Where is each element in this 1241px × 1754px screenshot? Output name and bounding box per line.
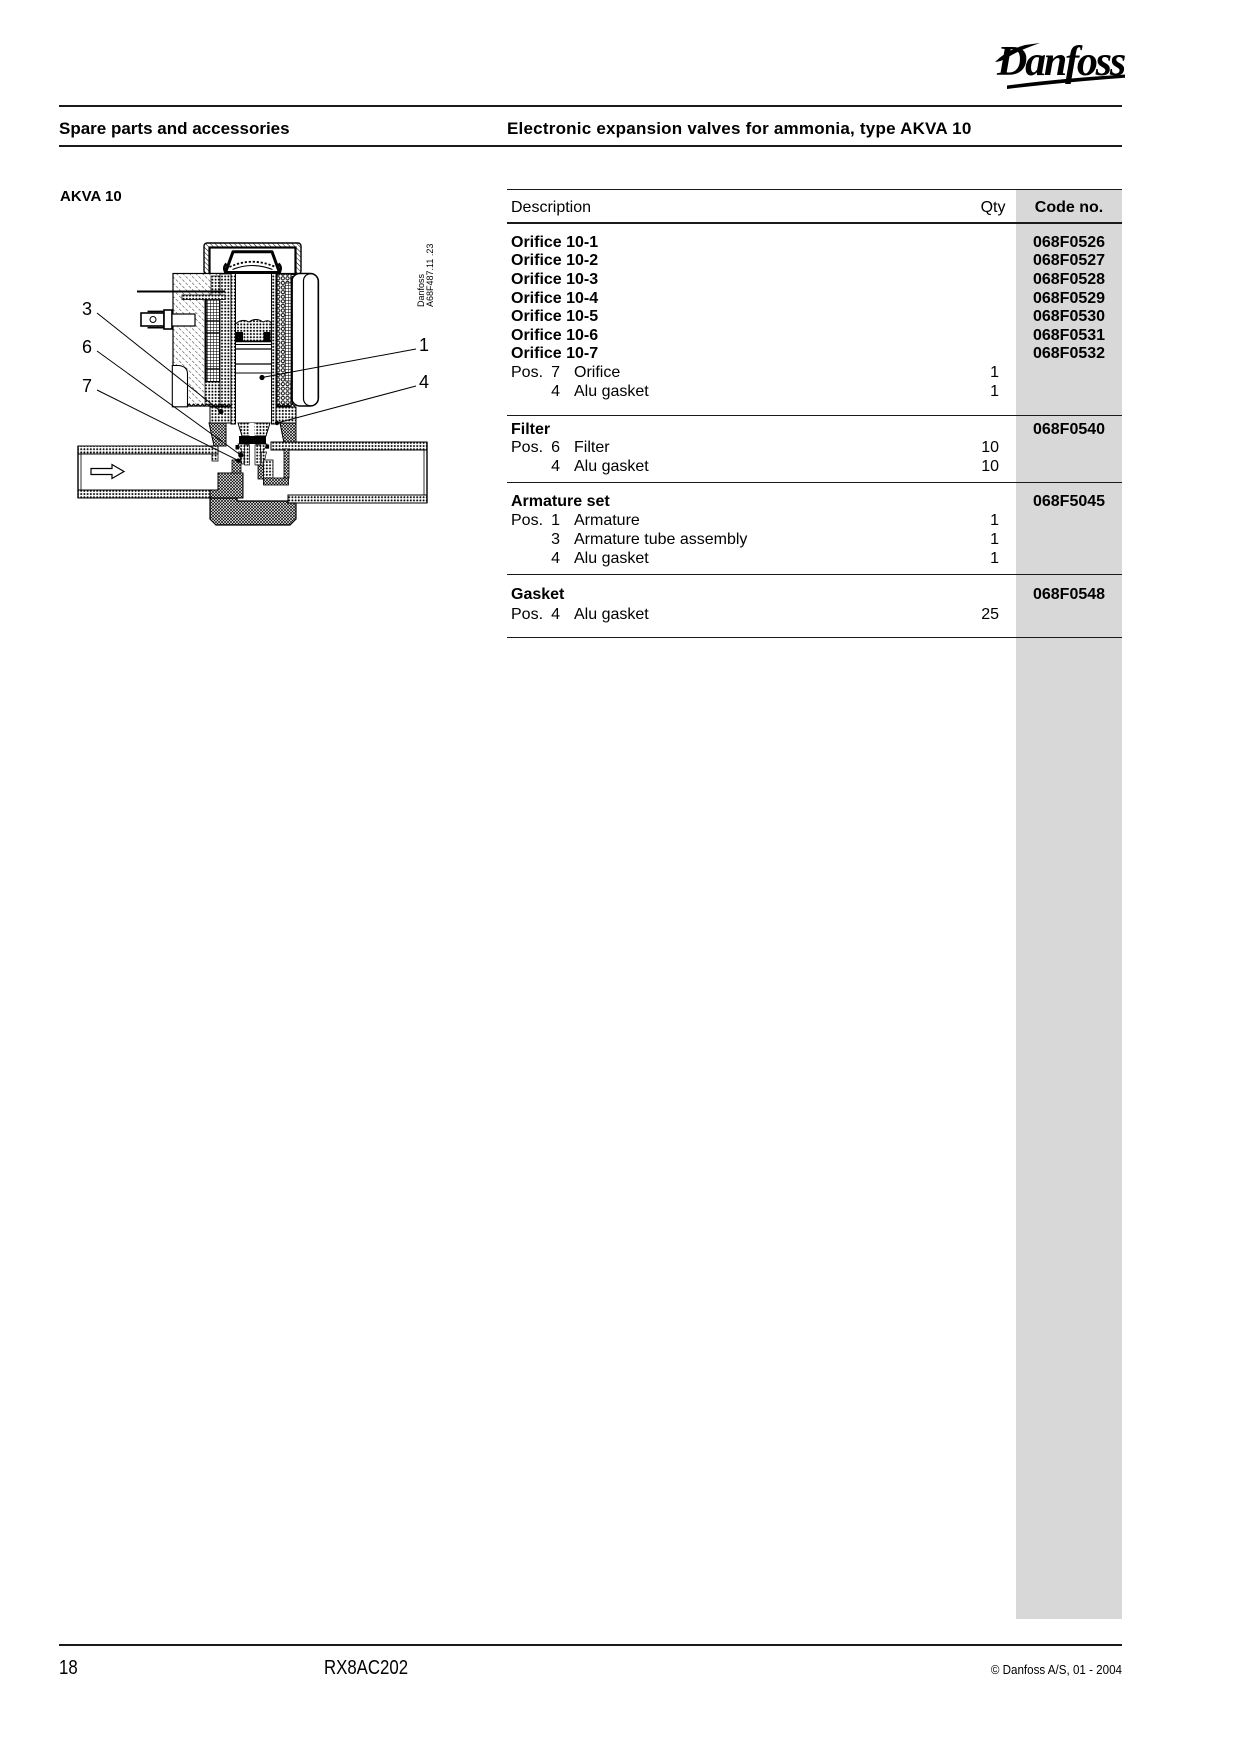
svg-text:3: 3 <box>82 299 92 319</box>
svg-text:1: 1 <box>419 335 429 355</box>
svg-text:7: 7 <box>82 376 92 396</box>
svg-text:6: 6 <box>82 337 92 357</box>
svg-text:4: 4 <box>419 372 429 392</box>
svg-text:A68F487.11 .23: A68F487.11 .23 <box>425 244 435 307</box>
